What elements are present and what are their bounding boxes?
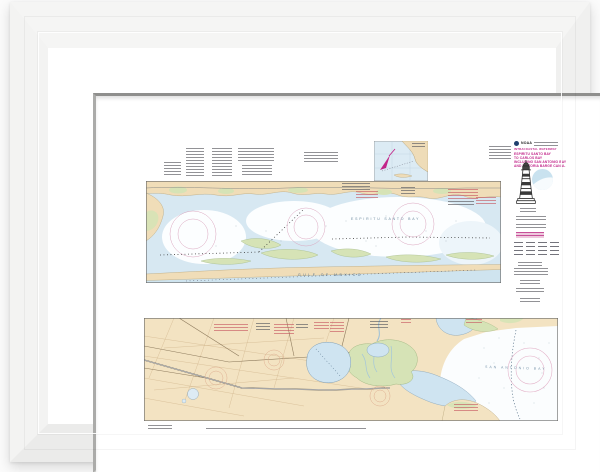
title-note (520, 280, 540, 284)
chart-note-red (401, 319, 411, 325)
chart-note (296, 324, 308, 330)
chart-series-label: INTRACOASTAL WATERWAY (514, 148, 557, 151)
note-block (164, 162, 181, 175)
chart-note (256, 323, 270, 330)
gulf-name-label: GULF OF MEXICO (298, 273, 363, 277)
picture-frame: NOAA INTRACOASTAL WATERWAY ESPIRITU SANT… (10, 2, 590, 462)
chart-note-red (274, 324, 294, 336)
locator-inset (374, 141, 428, 181)
title-note (516, 288, 544, 294)
agency-subtext (534, 142, 558, 146)
bay-name-label: ESPIRITU SANTO BAY (351, 217, 420, 221)
title-note (518, 262, 542, 266)
title-note (516, 216, 546, 220)
note-block (242, 165, 272, 175)
chart-note-red (330, 322, 344, 332)
edition-note (148, 425, 172, 429)
note-block (489, 146, 511, 159)
chart-note-red (214, 324, 248, 333)
noaa-emblem-icon (514, 141, 519, 146)
chart-note (342, 183, 370, 190)
note-block (212, 148, 232, 176)
chart-note (401, 187, 415, 195)
agency-header: NOAA (514, 141, 558, 146)
chart-note-red (466, 319, 482, 324)
note-block (186, 148, 204, 176)
chart-print: NOAA INTRACOASTAL WATERWAY ESPIRITU SANT… (96, 96, 600, 472)
inset-caption (412, 143, 425, 148)
mission-lake-water (367, 343, 389, 357)
footer-note (206, 428, 366, 431)
title-note (514, 268, 548, 276)
chart-note (448, 201, 474, 207)
highlight-note (516, 232, 544, 238)
lower-chart-art (144, 318, 558, 421)
pond (188, 389, 199, 400)
upper-chart: ESPIRITU SANTO BAY GULF OF MEXICO (146, 181, 501, 283)
lighthouse-icon (515, 160, 537, 204)
note-block (238, 148, 274, 162)
mat-board: NOAA INTRACOASTAL WATERWAY ESPIRITU SANT… (96, 96, 600, 472)
coordinates-note (304, 152, 338, 164)
chart-note-red (314, 322, 329, 331)
chart-note-red (448, 189, 478, 199)
chart-note-red (476, 197, 496, 205)
chart-note (370, 321, 388, 329)
green-lake-water (307, 342, 351, 383)
agency-name: NOAA (521, 141, 532, 146)
chart-note-red (454, 404, 478, 412)
title-note (516, 224, 546, 229)
tide-table (514, 242, 560, 258)
chart-note-red (356, 191, 378, 200)
lower-chart: SAN ANTONIO BAY (144, 318, 558, 421)
title-note (520, 208, 536, 213)
title-note (520, 298, 540, 302)
framed-chart-photo: NOAA INTRACOASTAL WATERWAY ESPIRITU SANT… (0, 0, 600, 472)
